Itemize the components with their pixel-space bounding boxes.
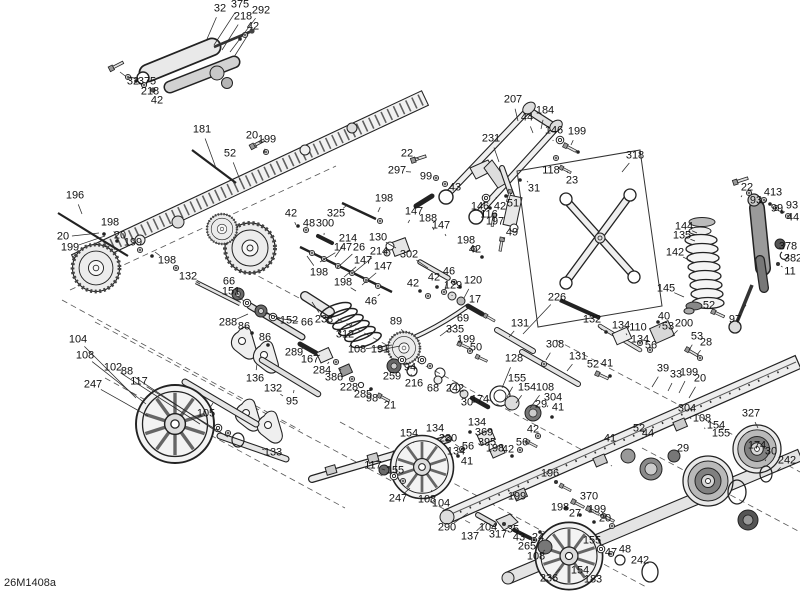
bottom-wheels: [379, 425, 781, 590]
upper-arm: [410, 100, 579, 252]
top-shock: [108, 28, 254, 92]
center-axles: [398, 330, 612, 421]
drawing-code: 26M1408a: [4, 577, 56, 589]
left-rail-assembly: [58, 91, 428, 304]
diagram-artwork: [0, 0, 800, 592]
block-cluster: [600, 320, 703, 360]
rear-spring-shock: [684, 176, 791, 333]
detail-box-318: [517, 150, 662, 327]
parts-diagram: 3237529221842323752184218120199521962019…: [0, 0, 800, 592]
